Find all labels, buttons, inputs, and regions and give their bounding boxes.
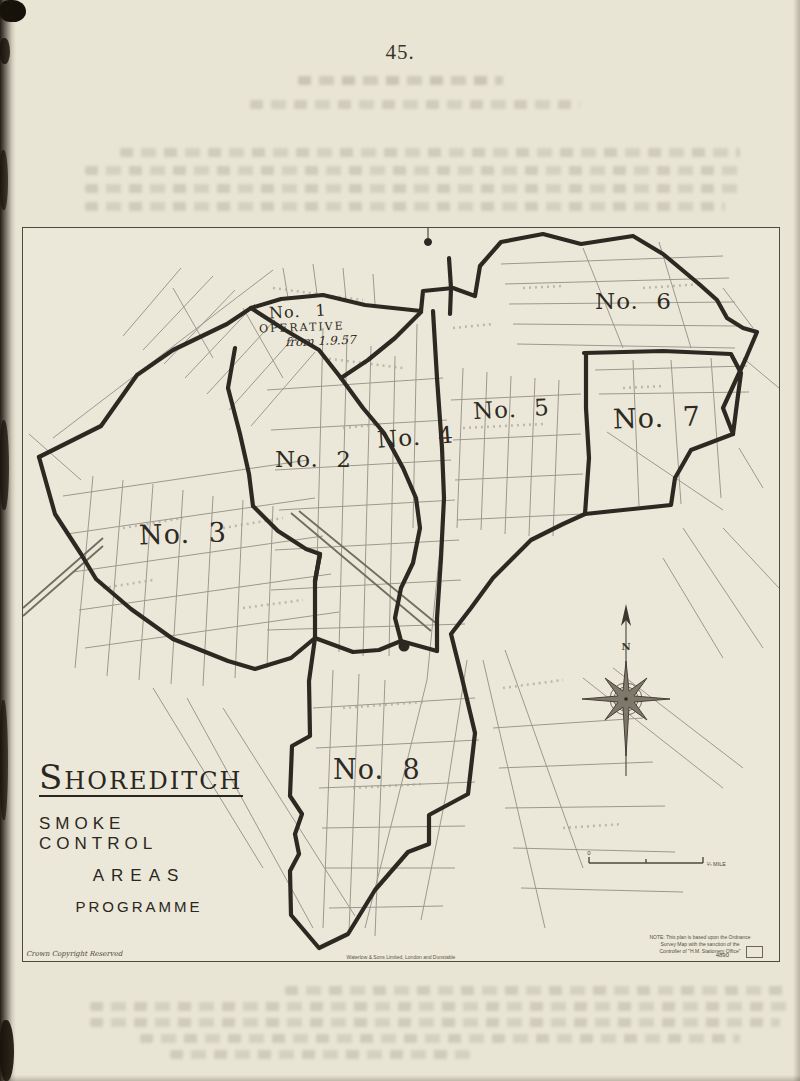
bleedthrough-line (90, 1018, 780, 1027)
scan-artifact (0, 420, 9, 510)
map-title-line3: AREAS (39, 866, 239, 886)
bleedthrough-line (85, 166, 745, 175)
area-label-7: No. 7 (612, 400, 701, 434)
plan-reference-box (746, 946, 763, 958)
compass-north-label: N (621, 641, 630, 652)
bleedthrough-line (140, 1034, 740, 1043)
scale-left-label: 0 (587, 850, 591, 856)
scan-artifact (0, 700, 8, 820)
bleedthrough-line (85, 184, 745, 193)
scan-artifact (0, 38, 10, 64)
bleedthrough-line (298, 76, 503, 85)
bleedthrough-line (90, 1002, 790, 1011)
scale-right-label: ¼ MILE (707, 861, 726, 867)
map-marker-dot (425, 228, 432, 246)
scanned-page: 45. (0, 0, 800, 1081)
map-note-line1: NOTE: This plan is based upon the Ordnan… (624, 934, 776, 941)
railway-lines (23, 511, 437, 631)
map-title-block: Shoreditch SMOKE CONTROL AREAS PROGRAMME (39, 760, 239, 915)
map-title-main: Shoreditch (39, 760, 243, 797)
map-title-line2: SMOKE CONTROL (39, 814, 239, 854)
bleedthrough-line (285, 986, 785, 995)
area-1-status-date: from 1.9.57 (285, 333, 356, 349)
bleedthrough-line (170, 1050, 470, 1059)
area-label-5: No. 5 (472, 394, 550, 424)
crown-copyright-note: Crown Copyright Reserved (26, 950, 122, 958)
printer-credit: Waterlow & Sons Limited, London and Duns… (347, 954, 456, 960)
scale-bar: 0 ¼ MILE (587, 850, 726, 867)
bleedthrough-line (120, 148, 740, 157)
area-label-3: No. 3 (138, 516, 227, 550)
scan-edge-right (793, 0, 800, 1081)
compass-star (582, 661, 670, 756)
plan-reference-number: 4890 (716, 952, 729, 958)
area-label-8: No. 8 (333, 754, 421, 785)
scan-artifact (0, 0, 26, 22)
bleedthrough-line (85, 202, 725, 211)
area-label-4: No. 4 (376, 421, 454, 452)
map-panel: N 0 ¼ MILE No. 1 OPERATIVE from 1.9.57 N… (22, 227, 780, 962)
page-number: 45. (0, 40, 800, 65)
bleedthrough-line (250, 100, 580, 109)
map-title-line4: PROGRAMME (39, 898, 239, 915)
area-label-1: No. 1 (269, 301, 328, 323)
compass-icon: N (582, 604, 670, 776)
boundary-junction-blob (399, 641, 410, 652)
building-texture (103, 284, 703, 828)
scan-artifact (0, 1020, 14, 1081)
area-label-2: No. 2 (275, 446, 352, 472)
scan-edge-bottom (0, 1075, 800, 1081)
scan-artifact (0, 150, 8, 210)
area-label-6: No. 6 (595, 288, 672, 314)
